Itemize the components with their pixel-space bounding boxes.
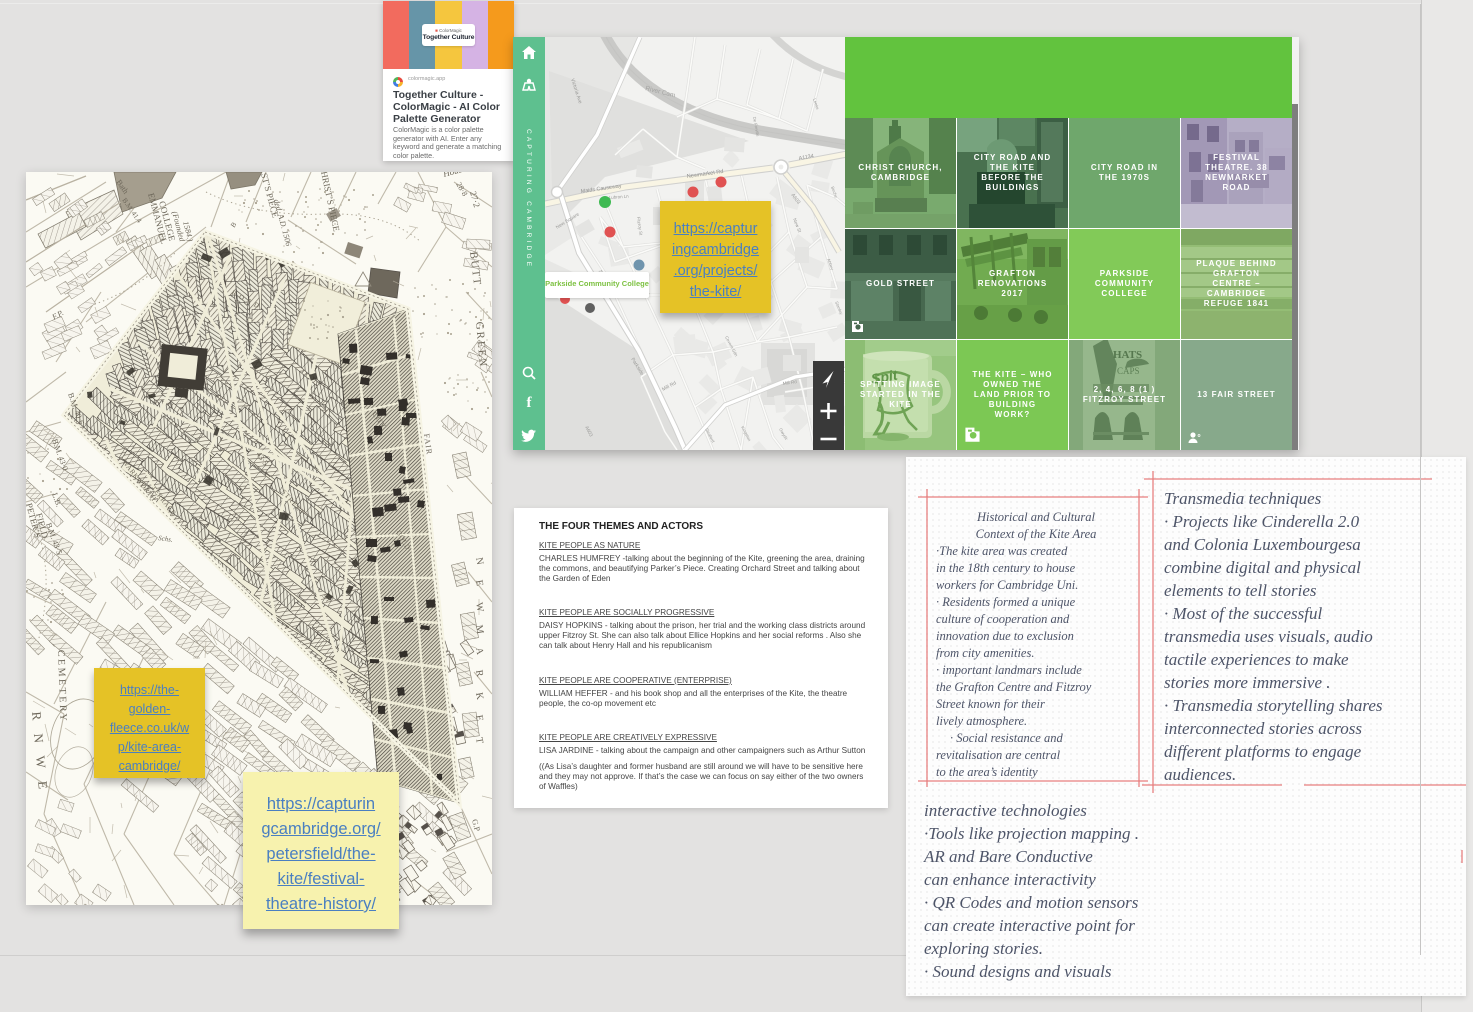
svg-text:o: o xyxy=(1198,433,1201,439)
svg-text:CAPS: CAPS xyxy=(1117,366,1140,376)
